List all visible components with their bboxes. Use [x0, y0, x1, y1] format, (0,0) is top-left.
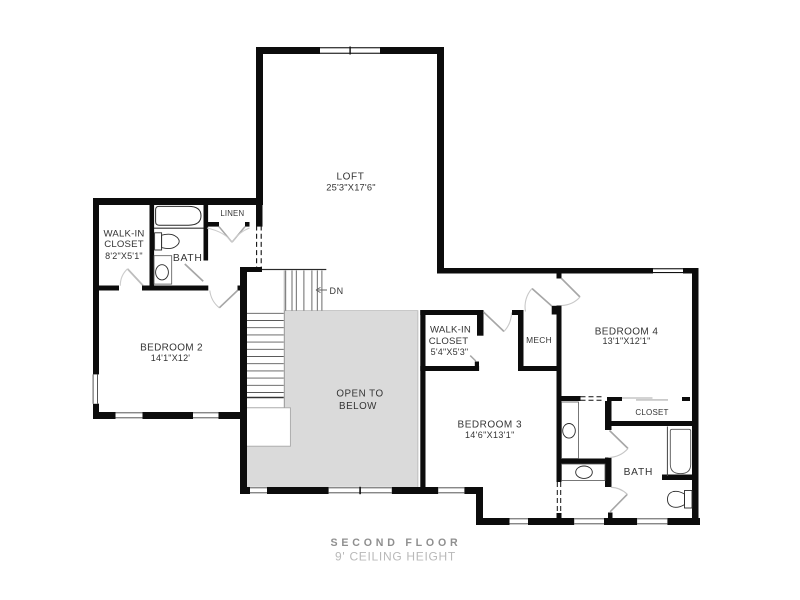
svg-text:14'6"X13'1": 14'6"X13'1"	[465, 430, 515, 440]
svg-text:SECOND FLOOR: SECOND FLOOR	[331, 537, 462, 549]
svg-text:9' CEILING HEIGHT: 9' CEILING HEIGHT	[335, 550, 456, 564]
svg-text:LINEN: LINEN	[220, 209, 244, 218]
svg-text:5'4"X5'3": 5'4"X5'3"	[431, 347, 469, 357]
svg-text:14'1"X12': 14'1"X12'	[151, 353, 191, 363]
svg-text:25'3"X17'6": 25'3"X17'6"	[326, 183, 376, 193]
svg-text:BATH: BATH	[173, 253, 203, 264]
svg-text:8'2"X5'1": 8'2"X5'1"	[105, 251, 143, 261]
svg-text:OPEN TO: OPEN TO	[336, 388, 383, 399]
svg-text:CLOSET: CLOSET	[635, 408, 668, 417]
svg-text:BEDROOM 3: BEDROOM 3	[458, 420, 523, 431]
svg-text:LOFT: LOFT	[337, 172, 365, 183]
svg-text:DN: DN	[330, 286, 344, 296]
svg-text:BATH: BATH	[624, 467, 654, 478]
svg-text:BELOW: BELOW	[339, 401, 377, 412]
svg-text:BEDROOM 2: BEDROOM 2	[140, 342, 203, 353]
svg-text:MECH: MECH	[526, 335, 552, 345]
svg-text:CLOSET: CLOSET	[104, 239, 144, 250]
svg-text:WALK-IN: WALK-IN	[430, 325, 471, 336]
svg-text:13'1"X12'1": 13'1"X12'1"	[602, 336, 650, 346]
svg-text:CLOSET: CLOSET	[429, 336, 469, 347]
